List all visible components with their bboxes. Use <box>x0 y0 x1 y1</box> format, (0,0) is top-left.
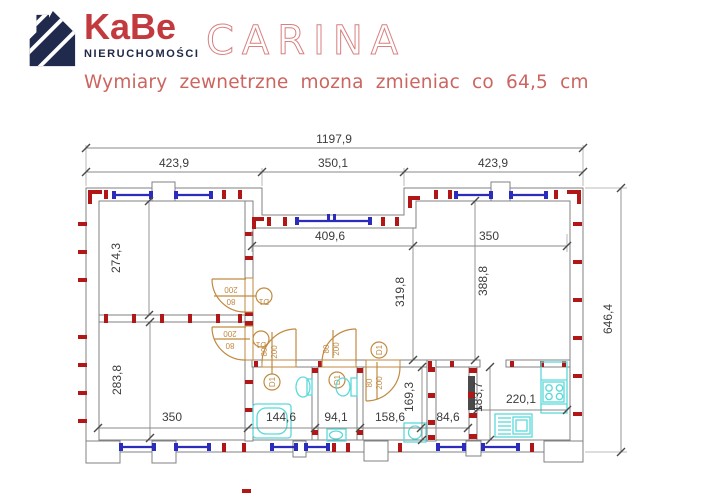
dim-bottom-4: 158,6 <box>375 410 405 424</box>
dim-bottom-2: 144,6 <box>266 410 296 424</box>
floorplan-page: KaBe NIERUCHOMOŚCI CARINA Wymiary zewnet… <box>0 0 708 500</box>
door-height-label: 200 <box>375 376 384 390</box>
dim-top-middle: 350,1 <box>318 156 348 170</box>
dim-kitchen-height: 183,7 <box>471 382 485 412</box>
dim-hall-height: 319,8 <box>393 277 407 307</box>
dim-bottom-1: 350 <box>162 410 182 424</box>
floorplan-drawing: 200 80 D1 200 80 D1 80 200 <box>0 0 708 500</box>
door-height-label: 200 <box>223 329 237 338</box>
door-width-label: 80 <box>226 297 235 306</box>
dim-corridor-height: 169,3 <box>402 382 416 412</box>
door-height-label: 200 <box>332 342 341 356</box>
door-width-label: 80 <box>260 347 269 356</box>
door-tag: D1 <box>375 344 384 355</box>
kitchen-sink <box>495 414 532 437</box>
door-tag: D1 <box>268 376 277 387</box>
dim-top-left: 423,9 <box>159 156 189 170</box>
door-tag: D1 <box>333 374 342 385</box>
dim-top-right: 423,9 <box>478 156 508 170</box>
door-tag: D1 <box>258 297 269 306</box>
dim-kitchen-width: 220,1 <box>506 392 536 406</box>
dim-living-height: 388,8 <box>476 266 490 296</box>
dim-bottom-5: 84,6 <box>436 410 460 424</box>
stray-mark <box>242 489 251 493</box>
dim-room-topleft-height: 274,3 <box>109 243 123 273</box>
dim-room-bottomleft-height: 283,8 <box>110 365 124 395</box>
dim-living-width: 350 <box>479 229 499 243</box>
dim-bottom-3: 94,1 <box>324 410 348 424</box>
dim-total-width: 1197,9 <box>316 132 352 146</box>
dim-hall-width: 409,6 <box>315 229 345 243</box>
door-width-label: 80 <box>225 341 234 350</box>
door-width-label: 80 <box>365 378 374 387</box>
door-height-label: 200 <box>270 345 279 359</box>
door-width-label: 80 <box>322 344 331 353</box>
door-height-label: 200 <box>224 285 238 294</box>
dim-total-height: 646,4 <box>601 304 615 334</box>
